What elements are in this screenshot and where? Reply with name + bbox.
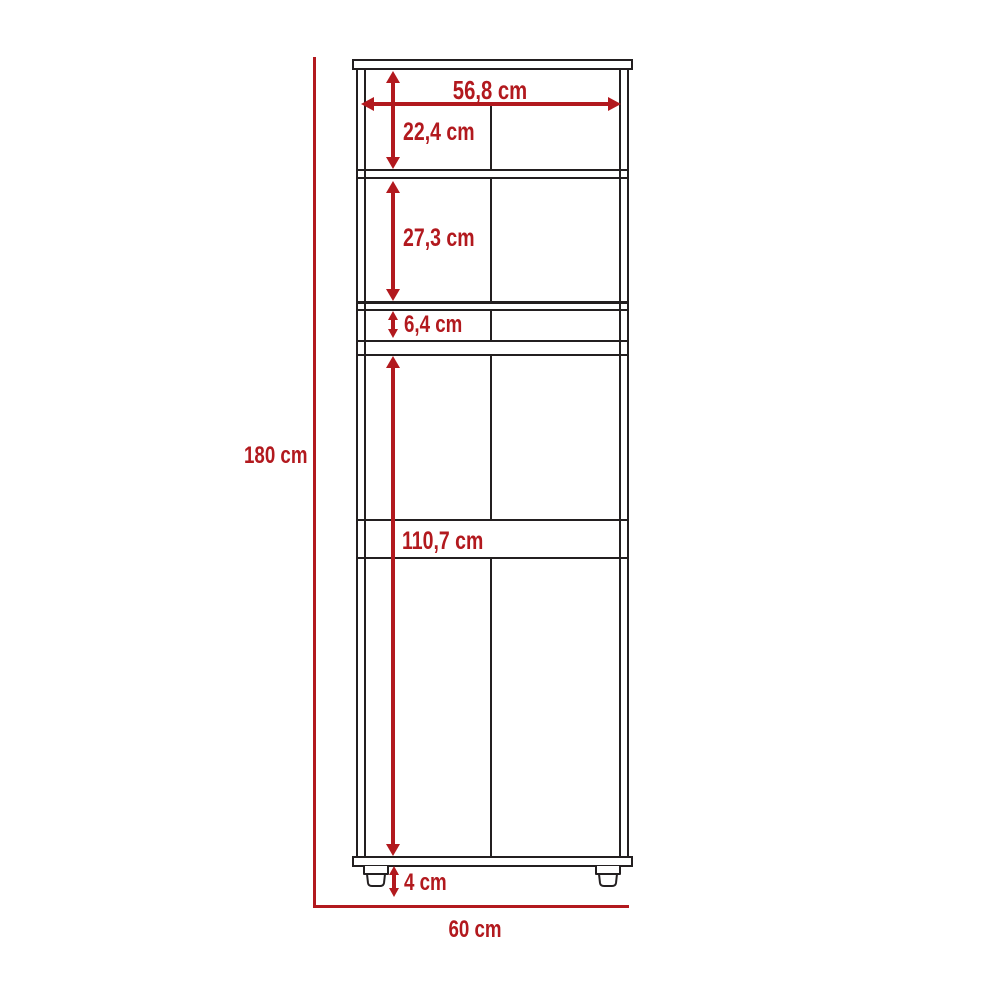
center-divider-segment-1 xyxy=(490,103,492,169)
lower-section-arrowhead-down xyxy=(386,844,400,856)
lower-section-arrowhead-up xyxy=(386,356,400,368)
second-niche-arrowhead-down xyxy=(386,289,400,301)
second-niche-arrow-stem xyxy=(391,190,395,290)
lower-section-arrow-stem xyxy=(391,364,395,846)
cabinet-left-side-outer-line xyxy=(356,70,358,856)
shelf-line-2-top xyxy=(358,301,627,304)
foot-right xyxy=(594,866,622,887)
center-divider-segment-3 xyxy=(490,311,492,340)
drawer-gap-arrowhead-down xyxy=(388,329,398,338)
top-niche-arrow-stem xyxy=(391,80,395,159)
shelf-line-1-bottom xyxy=(358,177,627,179)
inner-width-arrowhead-left xyxy=(361,97,374,111)
dim-label-inner-width: 56,8 cm xyxy=(404,77,576,103)
feet-height-arrowhead-down xyxy=(389,888,399,897)
dim-label-lower-section: 110,7 cm xyxy=(402,529,483,554)
feet-height-arrow-stem xyxy=(392,874,396,889)
inner-width-arrowhead-right xyxy=(608,97,621,111)
center-divider-segment-2 xyxy=(490,179,492,301)
shelf-line-1-top xyxy=(358,169,627,171)
feet-height-arrowhead-up xyxy=(389,866,399,875)
total-width-dimension-line xyxy=(313,905,629,908)
dim-label-drawer-gap: 6,4 cm xyxy=(404,313,462,337)
cabinet-top-board xyxy=(352,59,633,70)
dim-label-total-height: 180 cm xyxy=(244,444,307,468)
cabinet-right-side-inner-line xyxy=(619,70,621,856)
cabinet-right-side-outer-line xyxy=(627,70,629,856)
center-divider-segment-4 xyxy=(490,356,492,519)
diagram-canvas: 180 cm 60 cm 56,8 cm 22,4 cm 27,3 cm xyxy=(0,0,1000,1000)
dim-label-top-niche: 22,4 cm xyxy=(403,120,475,145)
shelf-line-2-bottom xyxy=(358,309,627,311)
foot-left xyxy=(362,866,390,887)
top-niche-arrowhead-up xyxy=(386,71,400,83)
center-divider-segment-5 xyxy=(490,559,492,856)
dim-label-feet-height: 4 cm xyxy=(404,871,447,895)
total-height-dimension-line xyxy=(313,57,316,908)
middle-rail-top-line xyxy=(358,519,627,521)
drawer-gap-bottom-line xyxy=(358,340,627,342)
dim-label-total-width: 60 cm xyxy=(428,918,522,942)
top-niche-arrowhead-down xyxy=(386,157,400,169)
drawer-gap-arrowhead-up xyxy=(388,311,398,320)
middle-rail-bottom-line xyxy=(358,557,627,559)
cabinet-left-side-inner-line xyxy=(364,70,366,856)
second-niche-arrowhead-up xyxy=(386,181,400,193)
dim-label-second-niche: 27,3 cm xyxy=(403,226,475,251)
